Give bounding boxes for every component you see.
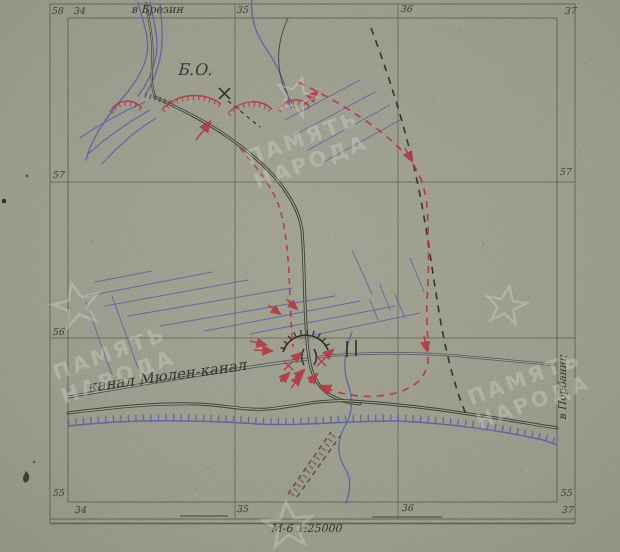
- grid-label-row57-right: 57: [559, 166, 573, 177]
- grid-label-row58: 58: [51, 5, 64, 16]
- strongpoint-label: Б.О.: [177, 60, 212, 79]
- map-canvas: 58 34 в Брезин 35 36 37 57 56 55 57 55 3…: [0, 0, 620, 552]
- grid-label-col36-top: 36: [400, 3, 413, 14]
- grid-label-col37-bottom: 37: [561, 504, 575, 515]
- grid-label-row55-left: 55: [52, 487, 65, 498]
- grid-label-row55-right: 55: [560, 487, 573, 498]
- grid-label-col34-top: 34: [73, 5, 86, 16]
- grid-label-col35-bottom: 35: [236, 503, 249, 514]
- grid-label-col36-bottom: 36: [401, 502, 414, 513]
- paper-grain: [0, 0, 620, 552]
- grid-label-row56-left: 56: [52, 326, 65, 337]
- scanned-map-sheet: 58 34 в Брезин 35 36 37 57 56 55 57 55 3…: [0, 0, 620, 552]
- grid-label-col35-top: 35: [236, 4, 249, 15]
- destination-label-top: в Брезин: [131, 3, 185, 16]
- grid-label-col34-bottom: 34: [74, 504, 87, 515]
- scale-note: М-6 1:25000: [270, 522, 342, 535]
- grid-label-row57-left: 57: [52, 169, 66, 180]
- grid-label-col37-top: 37: [564, 5, 578, 16]
